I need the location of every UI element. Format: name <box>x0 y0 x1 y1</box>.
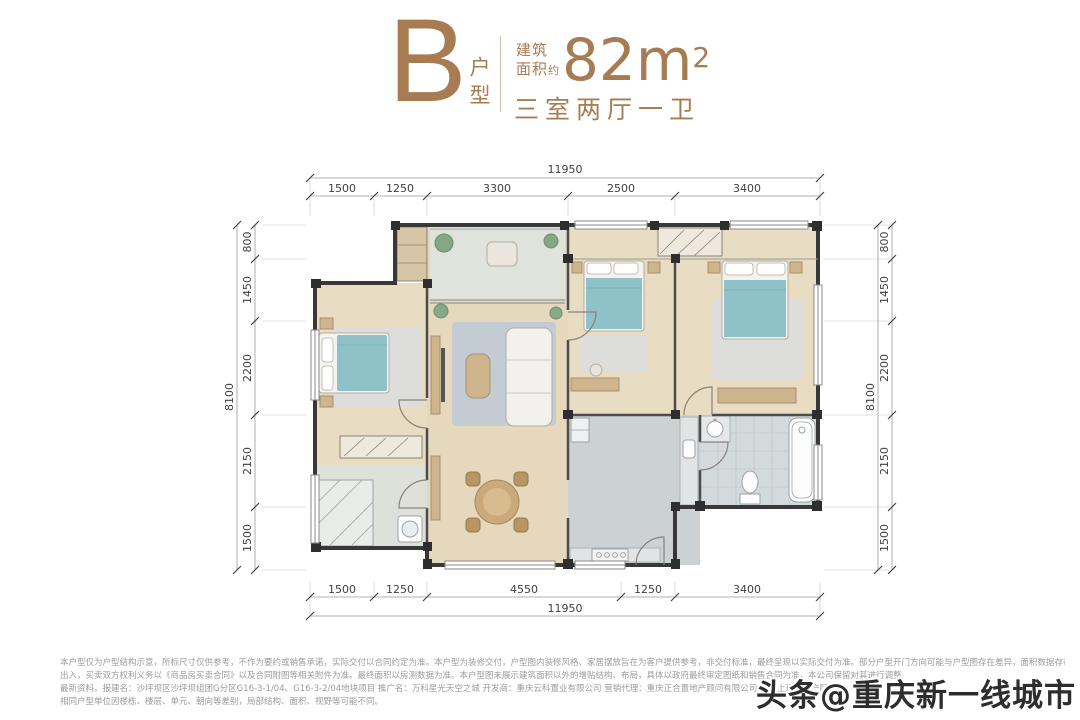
area-approx-label: 约 <box>548 64 560 77</box>
area-prefix-line2: 面积 <box>516 60 548 78</box>
dim-right-total: 8100 <box>864 383 877 411</box>
ac-platform <box>317 480 373 546</box>
watermark-text: 头条@重庆新一线城市 <box>756 670 1076 715</box>
chair-icon <box>514 472 528 486</box>
closet-icon <box>658 228 722 256</box>
tv-console <box>431 336 440 414</box>
dim-bottom-seg: 1500 <box>328 583 356 596</box>
pillow <box>757 263 785 275</box>
dim-top-seg: 1500 <box>328 182 356 195</box>
toilet-icon <box>742 471 758 493</box>
dim-bottom-seg: 4550 <box>510 583 538 596</box>
dim-top-seg: 3300 <box>483 182 511 195</box>
dim-left-seg: 1500 <box>241 524 254 552</box>
pillow <box>322 366 333 390</box>
floor-plan: 11950 1500 1250 3300 2500 3400 1500 1250… <box>0 150 1080 670</box>
dim-top-total: 11950 <box>548 163 583 176</box>
bed-blanket <box>724 280 786 337</box>
area-row: 建筑 面积约 82m2 <box>516 33 710 87</box>
area-prefix-label: 建筑 面积约 <box>516 41 560 80</box>
chair-icon <box>514 518 528 532</box>
dim-bottom-seg: 3400 <box>733 583 761 596</box>
area-exponent: 2 <box>692 41 710 74</box>
desk-chair <box>590 364 602 376</box>
kitchen-sink <box>683 440 695 458</box>
dim-left-seg: 2150 <box>241 447 254 475</box>
sofa-icon <box>506 328 552 426</box>
dining-table-top <box>483 488 511 516</box>
entry-cabinet <box>397 227 427 281</box>
nightstand <box>708 262 720 273</box>
dim-top-seg: 3400 <box>733 182 761 195</box>
pillow <box>587 263 611 274</box>
dresser-icon <box>718 388 796 403</box>
bathtub-icon <box>789 418 815 502</box>
rug <box>580 335 648 371</box>
dim-right-seg: 2150 <box>878 447 891 475</box>
chair-icon <box>466 518 480 532</box>
sideboard <box>431 456 440 520</box>
dim-bottom-seg: 1250 <box>386 583 414 596</box>
dim-top-seg: 2500 <box>607 182 635 195</box>
room-layout-label: 三室两厅一卫 <box>514 90 700 126</box>
dim-left-total: 8100 <box>223 383 236 411</box>
dim-right-seg: 2200 <box>878 354 891 382</box>
nightstand <box>320 396 333 407</box>
nightstand <box>572 262 582 273</box>
plant-icon <box>435 234 453 252</box>
dim-top-seg: 1250 <box>386 182 414 195</box>
faucet <box>714 419 717 422</box>
pillow <box>725 263 753 275</box>
toilet-tank <box>740 494 760 504</box>
plant-icon <box>434 304 448 318</box>
unit-type-label: 户型 <box>464 56 494 112</box>
dim-right-seg: 1500 <box>878 524 891 552</box>
unit-type-letter: B <box>388 6 467 116</box>
pillow <box>614 263 638 274</box>
disclaimer-line: 本户型仅为户型结构示意，所标尺寸仅供参考，不作为要约或销售承诺，实际交付以合同约… <box>60 657 1065 670</box>
area-number: 82m <box>562 26 692 94</box>
dim-right-seg: 1450 <box>878 276 891 304</box>
dim-right-seg: 800 <box>878 232 891 253</box>
area-value: 82m2 <box>562 33 710 87</box>
header-divider <box>500 36 501 112</box>
pillow <box>322 338 333 362</box>
dim-left-seg: 800 <box>241 232 254 253</box>
wardrobe-icon <box>340 436 422 458</box>
sink-icon <box>707 421 723 437</box>
dim-bottom-seg: 1250 <box>634 583 662 596</box>
nightstand <box>648 262 660 273</box>
nightstand <box>790 262 802 273</box>
floorplan-page: B 户型 建筑 面积约 82m2 三室两厅一卫 <box>0 0 1080 720</box>
nightstand <box>320 318 333 329</box>
armchair-icon <box>487 242 517 266</box>
desk-icon <box>571 378 619 391</box>
tv-icon <box>441 348 445 402</box>
dim-bottom-total: 11950 <box>548 602 583 615</box>
dim-left-seg: 1450 <box>241 276 254 304</box>
plant-icon <box>550 307 562 319</box>
coffee-table <box>466 354 490 398</box>
dim-left-seg: 2200 <box>241 354 254 382</box>
bed-blanket <box>337 335 387 391</box>
chair-icon <box>466 472 480 486</box>
kitchen-counter <box>680 417 698 505</box>
plant-icon <box>544 234 558 248</box>
stove-icon <box>592 549 628 561</box>
area-prefix-line1: 建筑 <box>516 41 548 59</box>
